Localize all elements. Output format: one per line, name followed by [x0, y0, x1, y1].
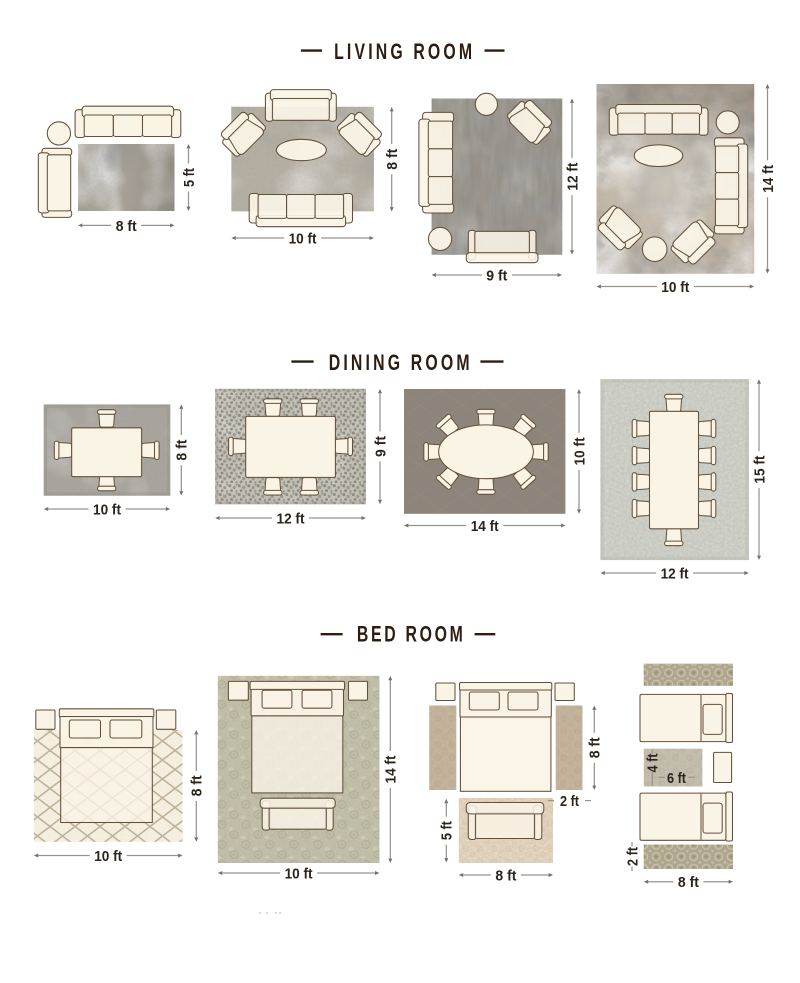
svg-text:12 ft: 12 ft [564, 163, 581, 191]
svg-text:BED ROOM: BED ROOM [357, 623, 466, 647]
svg-text:10 ft: 10 ft [94, 848, 122, 865]
svg-text:8 ft: 8 ft [495, 867, 516, 884]
svg-text:8 ft: 8 ft [116, 218, 137, 235]
svg-text:8 ft: 8 ft [678, 874, 699, 891]
svg-text:15 ft: 15 ft [751, 456, 768, 484]
svg-text:14 ft: 14 ft [471, 518, 499, 535]
svg-text:6 ft: 6 ft [667, 770, 686, 787]
svg-text:8 ft: 8 ft [189, 775, 206, 796]
svg-text:10 ft: 10 ft [93, 501, 121, 518]
svg-text:10 ft: 10 ft [289, 230, 317, 247]
svg-text:10 ft: 10 ft [285, 865, 313, 882]
svg-text:4 ft: 4 ft [645, 753, 662, 772]
svg-text:DINING ROOM: DINING ROOM [329, 352, 473, 376]
svg-text:9 ft: 9 ft [372, 436, 389, 457]
svg-text:12 ft: 12 ft [277, 510, 305, 527]
svg-text:5 ft: 5 ft [181, 168, 198, 187]
svg-text:10 ft: 10 ft [571, 437, 588, 465]
svg-text:2 ft: 2 ft [560, 793, 579, 810]
svg-text:8 ft: 8 ft [174, 440, 191, 461]
svg-text:14 ft: 14 ft [383, 755, 400, 783]
svg-text:14 ft: 14 ft [760, 165, 777, 193]
svg-text:5 ft: 5 ft [439, 821, 456, 840]
svg-text:9 ft: 9 ft [486, 267, 507, 284]
svg-text:12 ft: 12 ft [661, 565, 689, 582]
svg-text:8 ft: 8 ft [384, 149, 401, 170]
svg-text:8 ft: 8 ft [587, 737, 604, 758]
svg-text:10 ft: 10 ft [661, 279, 689, 296]
svg-text:LIVING ROOM: LIVING ROOM [334, 41, 475, 65]
svg-text:2 ft: 2 ft [624, 847, 641, 866]
